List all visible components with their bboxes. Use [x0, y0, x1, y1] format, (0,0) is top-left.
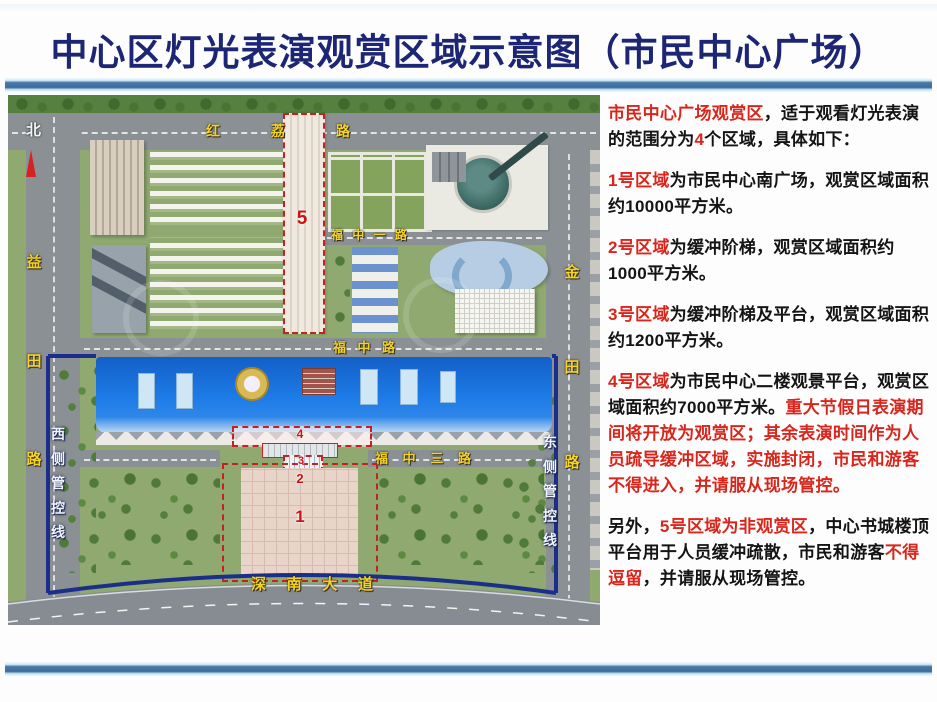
palace-annex [432, 152, 466, 182]
panel-text: 个区域，具体如下： [704, 130, 860, 149]
panel-paragraph: 3号区域为缓冲阶梯及平台，观赏区域面积约1200平方米。 [608, 302, 933, 354]
skylight [440, 371, 456, 403]
label-char: 管 [51, 476, 65, 490]
panel-text-red: 2号区域 [608, 238, 670, 257]
panel-paragraph: 1号区域为市民中心南广场，观赏区域面积约10000平方米。 [608, 168, 933, 220]
library-building [90, 140, 144, 235]
zone2-label: 2 [296, 472, 303, 485]
gold-disc-feature [235, 367, 269, 401]
park-southwest [82, 469, 220, 565]
tree-belt-north [8, 95, 600, 113]
label-char: 田 [26, 354, 41, 369]
info-panel: 市民中心广场观赏区，适于观看灯光表演的范围分为4个区域，具体如下：1号区域为市民… [608, 101, 933, 607]
page-title: 中心区灯光表演观赏区域示意图（市民中心广场） [0, 22, 937, 76]
label-char: 益 [26, 255, 41, 270]
label-char: 路 [395, 229, 407, 241]
north-arrow-icon [26, 150, 36, 177]
panel-text: 另外， [608, 517, 660, 536]
label-char: 荔 [271, 124, 285, 138]
park-southeast [372, 469, 544, 565]
slide: 中心区灯光表演观赏区域示意图（市民中心广场） [0, 0, 937, 702]
label-char: 中 [403, 452, 416, 465]
road-label-fuzhongsan: 福中三路 [375, 452, 471, 465]
label-char: 中 [357, 341, 370, 354]
road-label-hongli: 红荔路 [206, 124, 350, 138]
skylight [400, 369, 418, 405]
road-label-jintian: 金田路 [564, 265, 580, 470]
top-edge-strip [0, 4, 937, 14]
watermark-circle [403, 277, 479, 353]
panel-text-red: 5号区域为非观赏区 [660, 517, 808, 536]
label-char: 大 [322, 577, 337, 592]
zone1-label: 1 [295, 508, 304, 525]
label-char: 路 [382, 341, 395, 354]
map-panel: 1 2 3 4 5 北 红荔路 益田路 金田路 福中一路 福中路 福中三路 深南… [8, 95, 600, 625]
road-label-fuzhong: 福中路 [333, 341, 395, 354]
zone3-label: 3 [298, 456, 304, 467]
road-label-yitian: 益田路 [26, 255, 42, 467]
label-char: 路 [26, 452, 41, 467]
label-char: 福 [333, 341, 346, 354]
label-char: 红 [206, 124, 220, 138]
skylight [138, 373, 155, 409]
label-char: 南 [287, 577, 302, 592]
panel-text-red: 3号区域 [608, 305, 670, 324]
skylight [176, 373, 193, 409]
label-char: 线 [51, 525, 65, 539]
label-char: 控 [543, 509, 557, 523]
label-char: 东 [543, 435, 557, 449]
zone5-label: 5 [297, 209, 308, 228]
blue-office-buildings [352, 247, 398, 333]
label-char: 路 [564, 455, 579, 470]
road-label-shennan: 深南大道 [251, 577, 373, 592]
label-char: 侧 [543, 460, 557, 474]
road-fuzhongsan-west [80, 450, 220, 467]
panel-text: ，并请服从现场管控。 [643, 569, 816, 588]
divider-bar-top [5, 78, 932, 92]
red-ribbed-feature [302, 368, 336, 395]
panel-text-red: 1号区域 [608, 171, 670, 190]
zone4-label: 4 [297, 428, 304, 440]
label-char: 控 [51, 501, 65, 515]
garden-cells [328, 152, 432, 232]
east-edge-buildings [590, 150, 600, 570]
label-char: 线 [543, 533, 557, 547]
road-label-fuzhongyi: 福中一路 [331, 229, 407, 241]
panel-paragraph: 4号区域为市民中心二楼观景平台，观赏区域面积约7000平方米。重大节假日表演期间… [608, 369, 933, 499]
label-char: 一 [374, 229, 386, 241]
divider-bar-bottom [5, 662, 932, 676]
panel-text-red: 市民中心广场观赏区 [608, 104, 764, 123]
skylight [360, 369, 378, 405]
panel-text-red: 4 [695, 130, 705, 149]
label-char: 中 [352, 229, 364, 241]
shennan-road-centerline [8, 604, 600, 623]
label-char: 福 [375, 452, 388, 465]
watermark-circle [123, 280, 199, 356]
control-line-west-label: 西侧管控线 [50, 427, 66, 539]
label-char: 三 [430, 452, 443, 465]
label-char: 路 [458, 452, 471, 465]
control-line-east-label: 东侧管控线 [542, 435, 558, 547]
green-mid-strip [328, 247, 350, 332]
terrace-gap [150, 228, 284, 237]
label-char: 福 [331, 229, 343, 241]
label-char: 管 [543, 484, 557, 498]
panel-paragraph: 市民中心广场观赏区，适于观看灯光表演的范围分为4个区域，具体如下： [608, 101, 933, 153]
label-char: 深 [251, 577, 266, 592]
label-char: 道 [358, 577, 373, 592]
label-char: 金 [564, 265, 579, 280]
panel-text-red: 4号区域 [608, 372, 670, 391]
civic-center-roof [96, 357, 552, 433]
panel-paragraph: 2号区域为缓冲阶梯，观赏区域面积约1000平方米。 [608, 235, 933, 287]
label-char: 路 [336, 124, 350, 138]
label-char: 西 [51, 427, 65, 441]
panel-paragraph: 另外，5号区域为非观赏区，中心书城楼顶平台用于人员缓冲疏散，市民和游客不得逗留，… [608, 514, 933, 592]
label-char: 田 [564, 360, 579, 375]
north-label: 北 [26, 123, 41, 138]
label-char: 侧 [51, 452, 65, 466]
